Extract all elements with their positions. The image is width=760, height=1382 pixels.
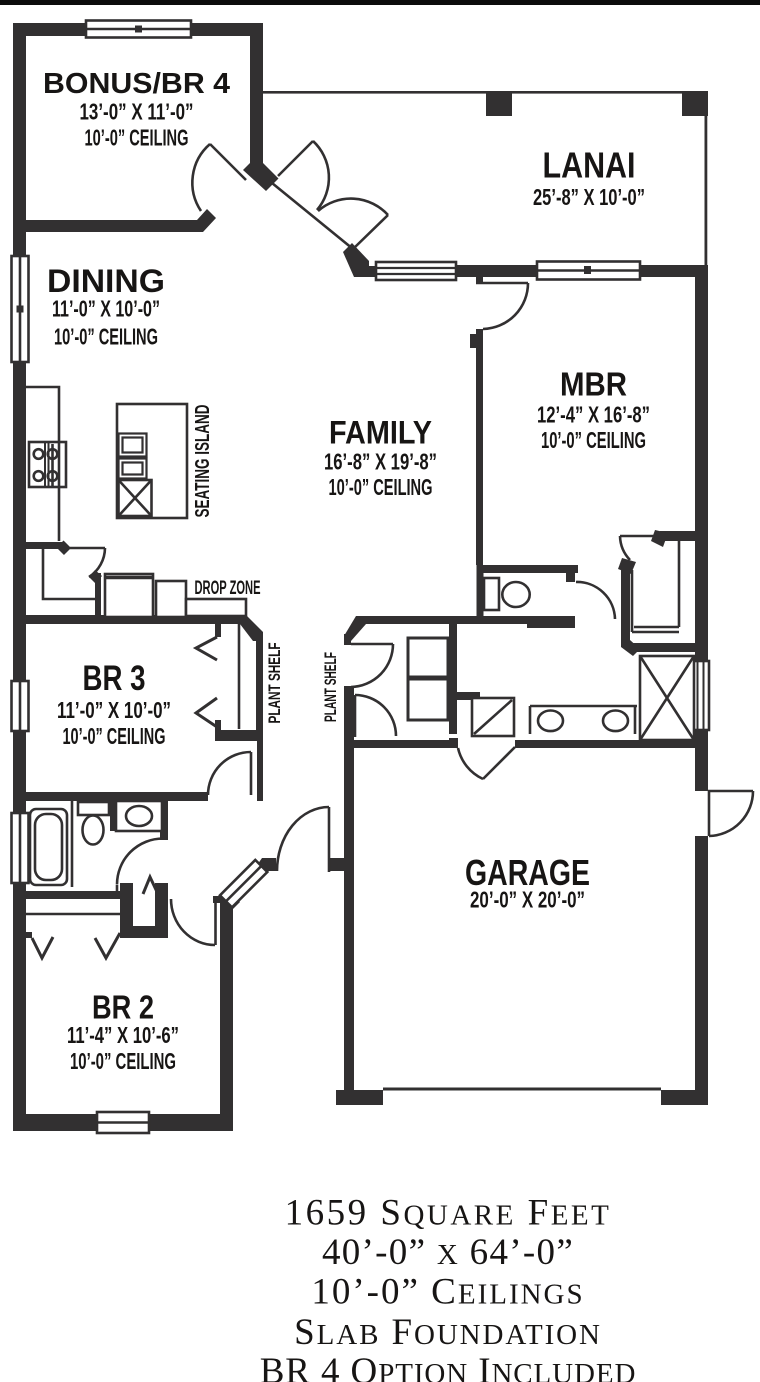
svg-text:LANAI: LANAI [543,145,636,186]
svg-text:11’-4” X 10’-6”: 11’-4” X 10’-6” [67,1022,179,1048]
svg-text:BR 3: BR 3 [83,659,146,698]
svg-text:10’-0” CEILING: 10’-0” CEILING [541,427,646,453]
svg-text:11’-0” X 10’-0”: 11’-0” X 10’-0” [52,296,160,322]
svg-text:10’-0” CEILING: 10’-0” CEILING [63,723,166,749]
svg-text:DINING: DINING [47,263,165,299]
svg-text:1659 SQUARE FEET: 1659 SQUARE FEET [285,1193,612,1234]
svg-text:25’-8” X 10’-0”: 25’-8” X 10’-0” [533,184,645,210]
svg-text:10’-0” CEILINGS: 10’-0” CEILINGS [311,1272,584,1313]
svg-text:BONUS/BR 4: BONUS/BR 4 [43,68,230,100]
svg-text:40’-0” X 64’-0”: 40’-0” X 64’-0” [322,1232,574,1273]
svg-text:SLAB FOUNDATION: SLAB FOUNDATION [294,1312,602,1353]
svg-text:12’-4” X 16’-8”: 12’-4” X 16’-8” [537,402,650,428]
svg-text:13’-0” X 11’-0”: 13’-0” X 11’-0” [80,99,194,125]
svg-text:11’-0” X 10’-0”: 11’-0” X 10’-0” [57,697,171,723]
svg-text:SEATING ISLAND: SEATING ISLAND [192,405,214,518]
svg-text:PLANT SHELF: PLANT SHELF [321,652,340,722]
svg-text:BR 2: BR 2 [92,990,154,1027]
svg-text:16’-8” X 19’-8”: 16’-8” X 19’-8” [324,449,437,475]
svg-text:10’-0” CEILING: 10’-0” CEILING [85,125,189,151]
svg-text:10’-0” CEILING: 10’-0” CEILING [329,474,433,500]
svg-text:PLANT SHELF: PLANT SHELF [265,643,284,724]
svg-text:10’-0” CEILING: 10’-0” CEILING [54,324,158,350]
svg-text:20’-0” X 20’-0”: 20’-0” X 20’-0” [470,887,585,913]
svg-text:10’-0” CEILING: 10’-0” CEILING [70,1048,176,1074]
svg-text:MBR: MBR [560,367,627,404]
svg-text:DROP ZONE: DROP ZONE [195,578,261,599]
svg-text:FAMILY: FAMILY [329,415,432,451]
